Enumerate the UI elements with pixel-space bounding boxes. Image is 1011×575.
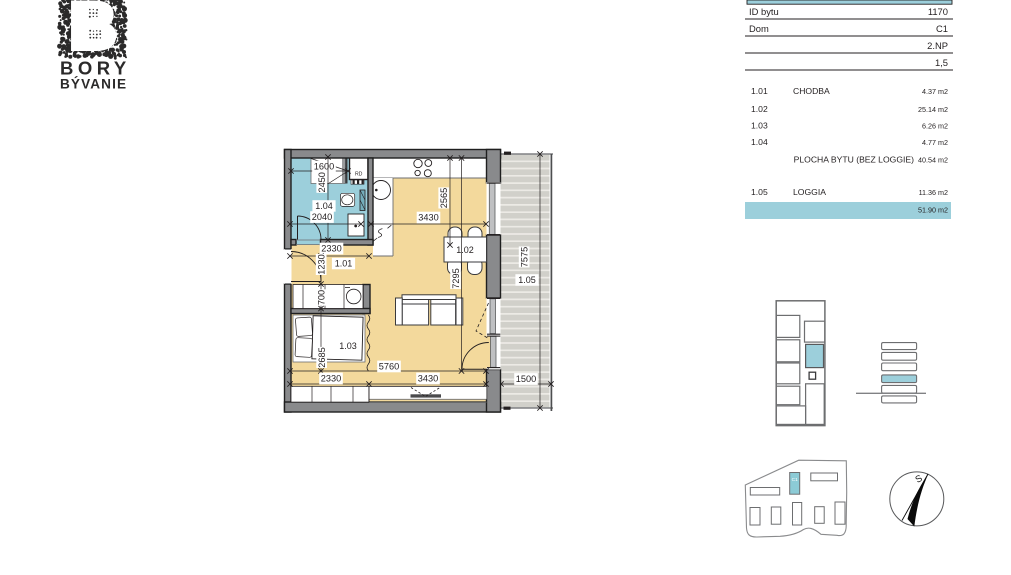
- svg-text:1170: 1170: [928, 6, 948, 17]
- svg-text:3430: 3430: [418, 374, 438, 384]
- svg-text:ID bytu: ID bytu: [749, 6, 779, 17]
- svg-text:1.04: 1.04: [751, 137, 768, 147]
- svg-text:2450: 2450: [317, 172, 327, 192]
- svg-text:7575: 7575: [519, 247, 529, 267]
- svg-text:1,5: 1,5: [935, 57, 948, 68]
- svg-text:1.05: 1.05: [751, 187, 768, 197]
- svg-text:2330: 2330: [321, 244, 341, 254]
- svg-text:1.05: 1.05: [518, 275, 536, 285]
- svg-text:1.01: 1.01: [751, 86, 768, 96]
- svg-text:2.NP: 2.NP: [927, 40, 948, 51]
- svg-text:1230: 1230: [316, 254, 326, 274]
- svg-text:11.36 m2: 11.36 m2: [919, 188, 948, 197]
- svg-text:1.02: 1.02: [456, 245, 474, 255]
- svg-text:40.54 m2: 40.54 m2: [918, 156, 948, 165]
- svg-text:LOGGIA: LOGGIA: [793, 187, 826, 197]
- svg-text:2040: 2040: [312, 212, 332, 222]
- svg-text:5760: 5760: [379, 362, 399, 372]
- svg-text:51.90 m2: 51.90 m2: [918, 206, 948, 215]
- svg-text:BORY: BORY: [60, 58, 131, 79]
- svg-text:2565: 2565: [439, 188, 449, 208]
- svg-text:1.02: 1.02: [751, 104, 768, 114]
- svg-text:RD: RD: [355, 172, 363, 178]
- svg-text:2685: 2685: [317, 347, 327, 367]
- svg-text:25.14 m2: 25.14 m2: [918, 105, 948, 114]
- svg-text:700: 700: [316, 290, 326, 305]
- svg-text:1.03: 1.03: [751, 121, 768, 131]
- svg-text:1.01: 1.01: [335, 259, 353, 269]
- svg-text:6.26 m2: 6.26 m2: [922, 122, 948, 131]
- svg-text:3430: 3430: [418, 213, 438, 223]
- svg-text:1500: 1500: [516, 374, 536, 384]
- svg-text:PLOCHA BYTU (BEZ LOGGIE): PLOCHA BYTU (BEZ LOGGIE): [794, 155, 914, 165]
- svg-text:1.03: 1.03: [339, 341, 357, 351]
- svg-text:BÝVANIE: BÝVANIE: [60, 77, 127, 92]
- svg-text:4.77 m2: 4.77 m2: [922, 138, 948, 147]
- svg-text:Dom: Dom: [749, 23, 769, 34]
- svg-text:4.37 m2: 4.37 m2: [922, 87, 948, 96]
- svg-text:2330: 2330: [321, 374, 341, 384]
- svg-text:7295: 7295: [451, 268, 461, 288]
- svg-text:C1: C1: [792, 477, 798, 483]
- svg-text:C1: C1: [936, 23, 948, 34]
- svg-text:1.04: 1.04: [315, 201, 333, 211]
- svg-text:CHODBA: CHODBA: [793, 86, 830, 96]
- svg-text:1600: 1600: [314, 162, 334, 172]
